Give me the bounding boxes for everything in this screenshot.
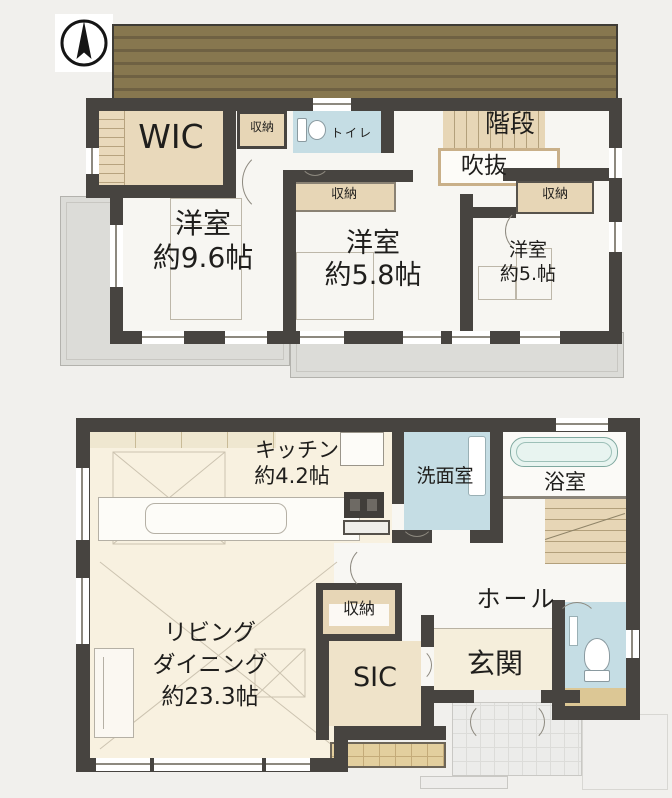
bath-label: 浴室 <box>520 470 610 494</box>
sic-label: SIC <box>329 662 421 693</box>
wall-segment <box>381 111 394 153</box>
stairs-diagonal <box>545 513 625 540</box>
window <box>556 418 608 431</box>
entrance-label: 玄関 <box>440 648 550 680</box>
toilet-tank-icon <box>297 118 307 142</box>
bedroom3-name: 洋室 <box>478 240 578 262</box>
window <box>520 331 560 344</box>
entry-door-arc <box>505 702 545 742</box>
compass-north-icon <box>55 14 113 72</box>
living-label-2: ダイニング <box>130 652 290 678</box>
kitchen-name: キッチン <box>232 438 362 462</box>
door-arc <box>242 150 306 214</box>
wall-segment <box>421 615 434 647</box>
window <box>313 98 351 111</box>
window <box>403 331 441 344</box>
window <box>300 331 344 344</box>
wall-segment <box>626 418 640 720</box>
wall-segment <box>316 641 329 740</box>
window <box>76 468 89 540</box>
approach-area <box>582 714 668 790</box>
kitchen-counter <box>98 497 360 541</box>
window <box>142 331 184 344</box>
void-label: 吹抜 <box>444 153 524 179</box>
wall-segment <box>392 432 404 504</box>
bedroom1-size: 約9.6帖 <box>113 242 293 274</box>
bedroom1-name: 洋室 <box>128 208 278 240</box>
porch-step <box>420 776 508 789</box>
toilet-tank-icon <box>584 670 610 682</box>
wall-segment <box>460 194 473 331</box>
window <box>609 222 622 252</box>
window-mullion <box>150 758 154 771</box>
closet-2f-a-label: 収納 <box>237 121 287 135</box>
stove-icon <box>344 492 384 518</box>
bedroom3-size: 約5.帖 <box>472 264 584 286</box>
hall-label: ホール <box>462 586 572 614</box>
roof-band <box>112 24 618 100</box>
kitchen-size: 約4.2帖 <box>232 464 352 488</box>
closet-1f-label: 収納 <box>316 600 402 618</box>
bathtub-icon <box>510 437 618 467</box>
window <box>96 758 310 771</box>
bathtub-inner <box>516 442 612 462</box>
kitchen-appliance <box>343 520 390 535</box>
floorplan-canvas: WIC 収納 トイレ 階段 吹抜 収納 収納 洋室 約9.6帖 洋室 約5.8帖… <box>0 0 672 798</box>
window-mullion <box>262 758 266 771</box>
closet-2f-c-label: 収納 <box>516 188 594 203</box>
stairs-2f-label: 階段 <box>450 110 570 139</box>
washroom-label: 洗面室 <box>404 466 486 488</box>
living-label-1: リビング <box>140 620 280 646</box>
toilet-bowl-icon <box>584 638 610 672</box>
sofa-seat-line <box>103 657 133 729</box>
bedroom2-size: 約5.8帖 <box>285 260 461 291</box>
window <box>86 148 99 174</box>
wall-segment <box>552 706 640 720</box>
door-arc <box>300 146 330 176</box>
door-arc <box>400 503 434 537</box>
burner <box>367 499 377 511</box>
burner <box>350 499 360 511</box>
door-arc <box>350 545 396 591</box>
window <box>626 630 639 658</box>
wall-segment <box>434 690 474 703</box>
closet-2f-b-label: 収納 <box>292 188 396 203</box>
window <box>609 148 622 178</box>
bedroom2-name: 洋室 <box>298 228 448 259</box>
window <box>452 331 490 344</box>
kitchen-sink <box>145 503 287 534</box>
living-size: 約23.3帖 <box>136 684 284 710</box>
wall-segment <box>490 418 503 530</box>
stairs-1f <box>545 498 626 564</box>
window <box>225 331 267 344</box>
wic-label: WIC <box>116 118 226 156</box>
wall-segment <box>334 726 446 740</box>
sofa-outline <box>94 648 134 738</box>
window <box>76 578 89 644</box>
wall-segment <box>421 686 434 726</box>
wall-segment <box>470 530 503 543</box>
entry-door-arc <box>470 702 510 742</box>
toilet-2f-label: トイレ <box>323 127 381 141</box>
wall-thin <box>503 496 626 499</box>
